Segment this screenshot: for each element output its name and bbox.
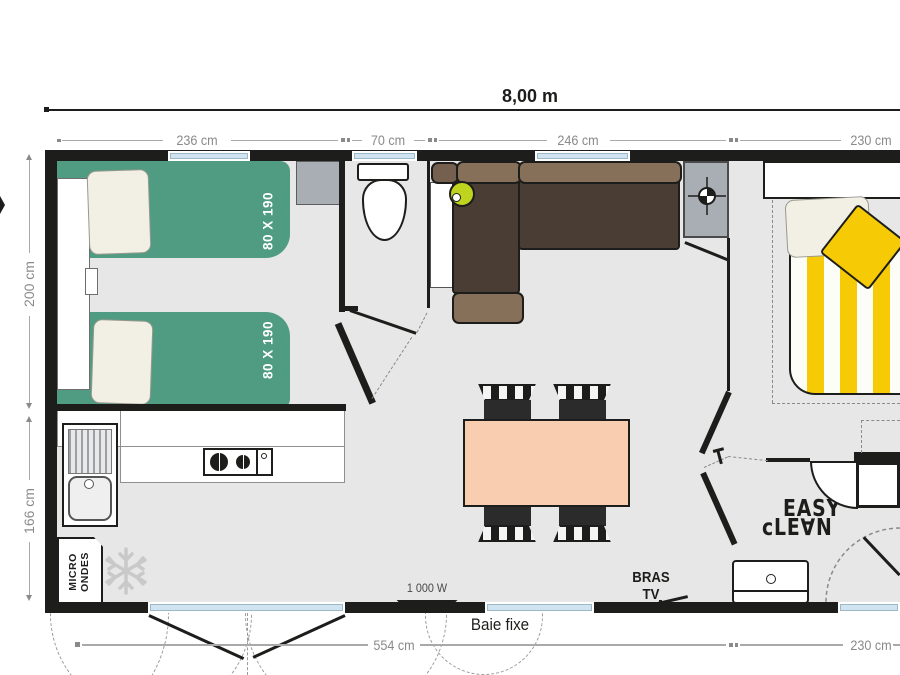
snowflake-icon (101, 546, 151, 596)
sofa-bottom-cushion (452, 292, 524, 324)
bay-window-label: Baie fixe (471, 616, 529, 635)
bed1-pillow (87, 169, 152, 255)
overall-dim-line (48, 109, 900, 111)
bath-window (838, 602, 900, 613)
chair-bottom-right-back (552, 525, 612, 542)
heater-power-label: 1 000 W (401, 581, 453, 595)
dim-200: 200 cm (21, 261, 37, 307)
bath-overhead-outline-v (861, 420, 862, 453)
kitchen-back-wall (57, 404, 346, 411)
bath-overhead-outline-h (861, 420, 900, 421)
edge-artifact (0, 196, 5, 214)
double-bed-duvet (789, 252, 900, 395)
bottom-dim-dot (75, 642, 80, 647)
dim-230-bottom: 230 cm (850, 637, 891, 653)
overall-dim-label: 8,00 m (502, 86, 558, 107)
vanity-drawer-line (734, 590, 807, 592)
dim-230-top: 230 cm (850, 132, 891, 148)
counter-divider (120, 410, 121, 447)
overhead-cabinet-outline-v (772, 200, 773, 403)
chair-bottom-right-seat (559, 506, 606, 526)
entrance-opening (148, 602, 345, 613)
dim-236: 236 cm (176, 132, 217, 148)
wc-right-wall (427, 161, 430, 308)
chair-top-left-seat (484, 400, 531, 420)
nightstand (85, 268, 98, 295)
dim-166: 166 cm (21, 488, 37, 534)
chair-bottom-left-seat (484, 506, 531, 526)
sink-drainboard (68, 429, 112, 474)
wc-window (352, 151, 417, 161)
vanity-basin-icon (766, 574, 776, 584)
bathroom-door-lintel (766, 458, 810, 462)
bed2-pillow (91, 319, 154, 405)
overhead-cabinet-outline-h (772, 403, 900, 404)
microwave-label: MICROONDES (67, 552, 91, 592)
lounge-window (535, 151, 630, 161)
shower-door-arc (815, 520, 900, 610)
bedroom-window (168, 151, 250, 161)
sofa-lamp-knob (452, 193, 461, 202)
dim-70: 70 cm (371, 132, 405, 148)
bedside-cabinet (296, 161, 342, 205)
double-bed-headboard (763, 161, 900, 199)
bathroom-wall-segment (854, 452, 900, 462)
stove-knob-icon (261, 453, 267, 459)
left-wall (45, 150, 57, 613)
sofa-back-cushion-1 (456, 161, 522, 184)
wc-left-wall (339, 161, 345, 312)
chair-top-right-seat (559, 400, 606, 420)
sofa-back-cushion-2 (518, 161, 682, 184)
stove-divider (256, 450, 258, 474)
bay-window-fixed (485, 602, 594, 613)
dim-246: 246 cm (557, 132, 598, 148)
chair-top-left-back (477, 384, 537, 401)
chair-top-right-back (552, 384, 612, 401)
mobile-home-floor-plan: 80 X 190 80 X 190 (0, 0, 900, 675)
water-heater-crosshair-icon (685, 174, 729, 218)
burner-large-grate (219, 453, 221, 471)
hall-wall-vertical (727, 238, 730, 391)
chair-bottom-left-back (477, 525, 537, 542)
dim-554: 554 cm (373, 637, 414, 653)
sofa-seat-horizontal (518, 178, 680, 250)
faucet-icon (84, 479, 94, 489)
bathroom-cabinet (856, 462, 900, 508)
sofa-arm-cushion (431, 162, 459, 184)
dining-table (463, 419, 630, 507)
bed1-size-label: 80 X 190 (261, 192, 276, 250)
burner-small-grate (243, 455, 245, 469)
bed2-size-label: 80 X 190 (261, 321, 276, 379)
